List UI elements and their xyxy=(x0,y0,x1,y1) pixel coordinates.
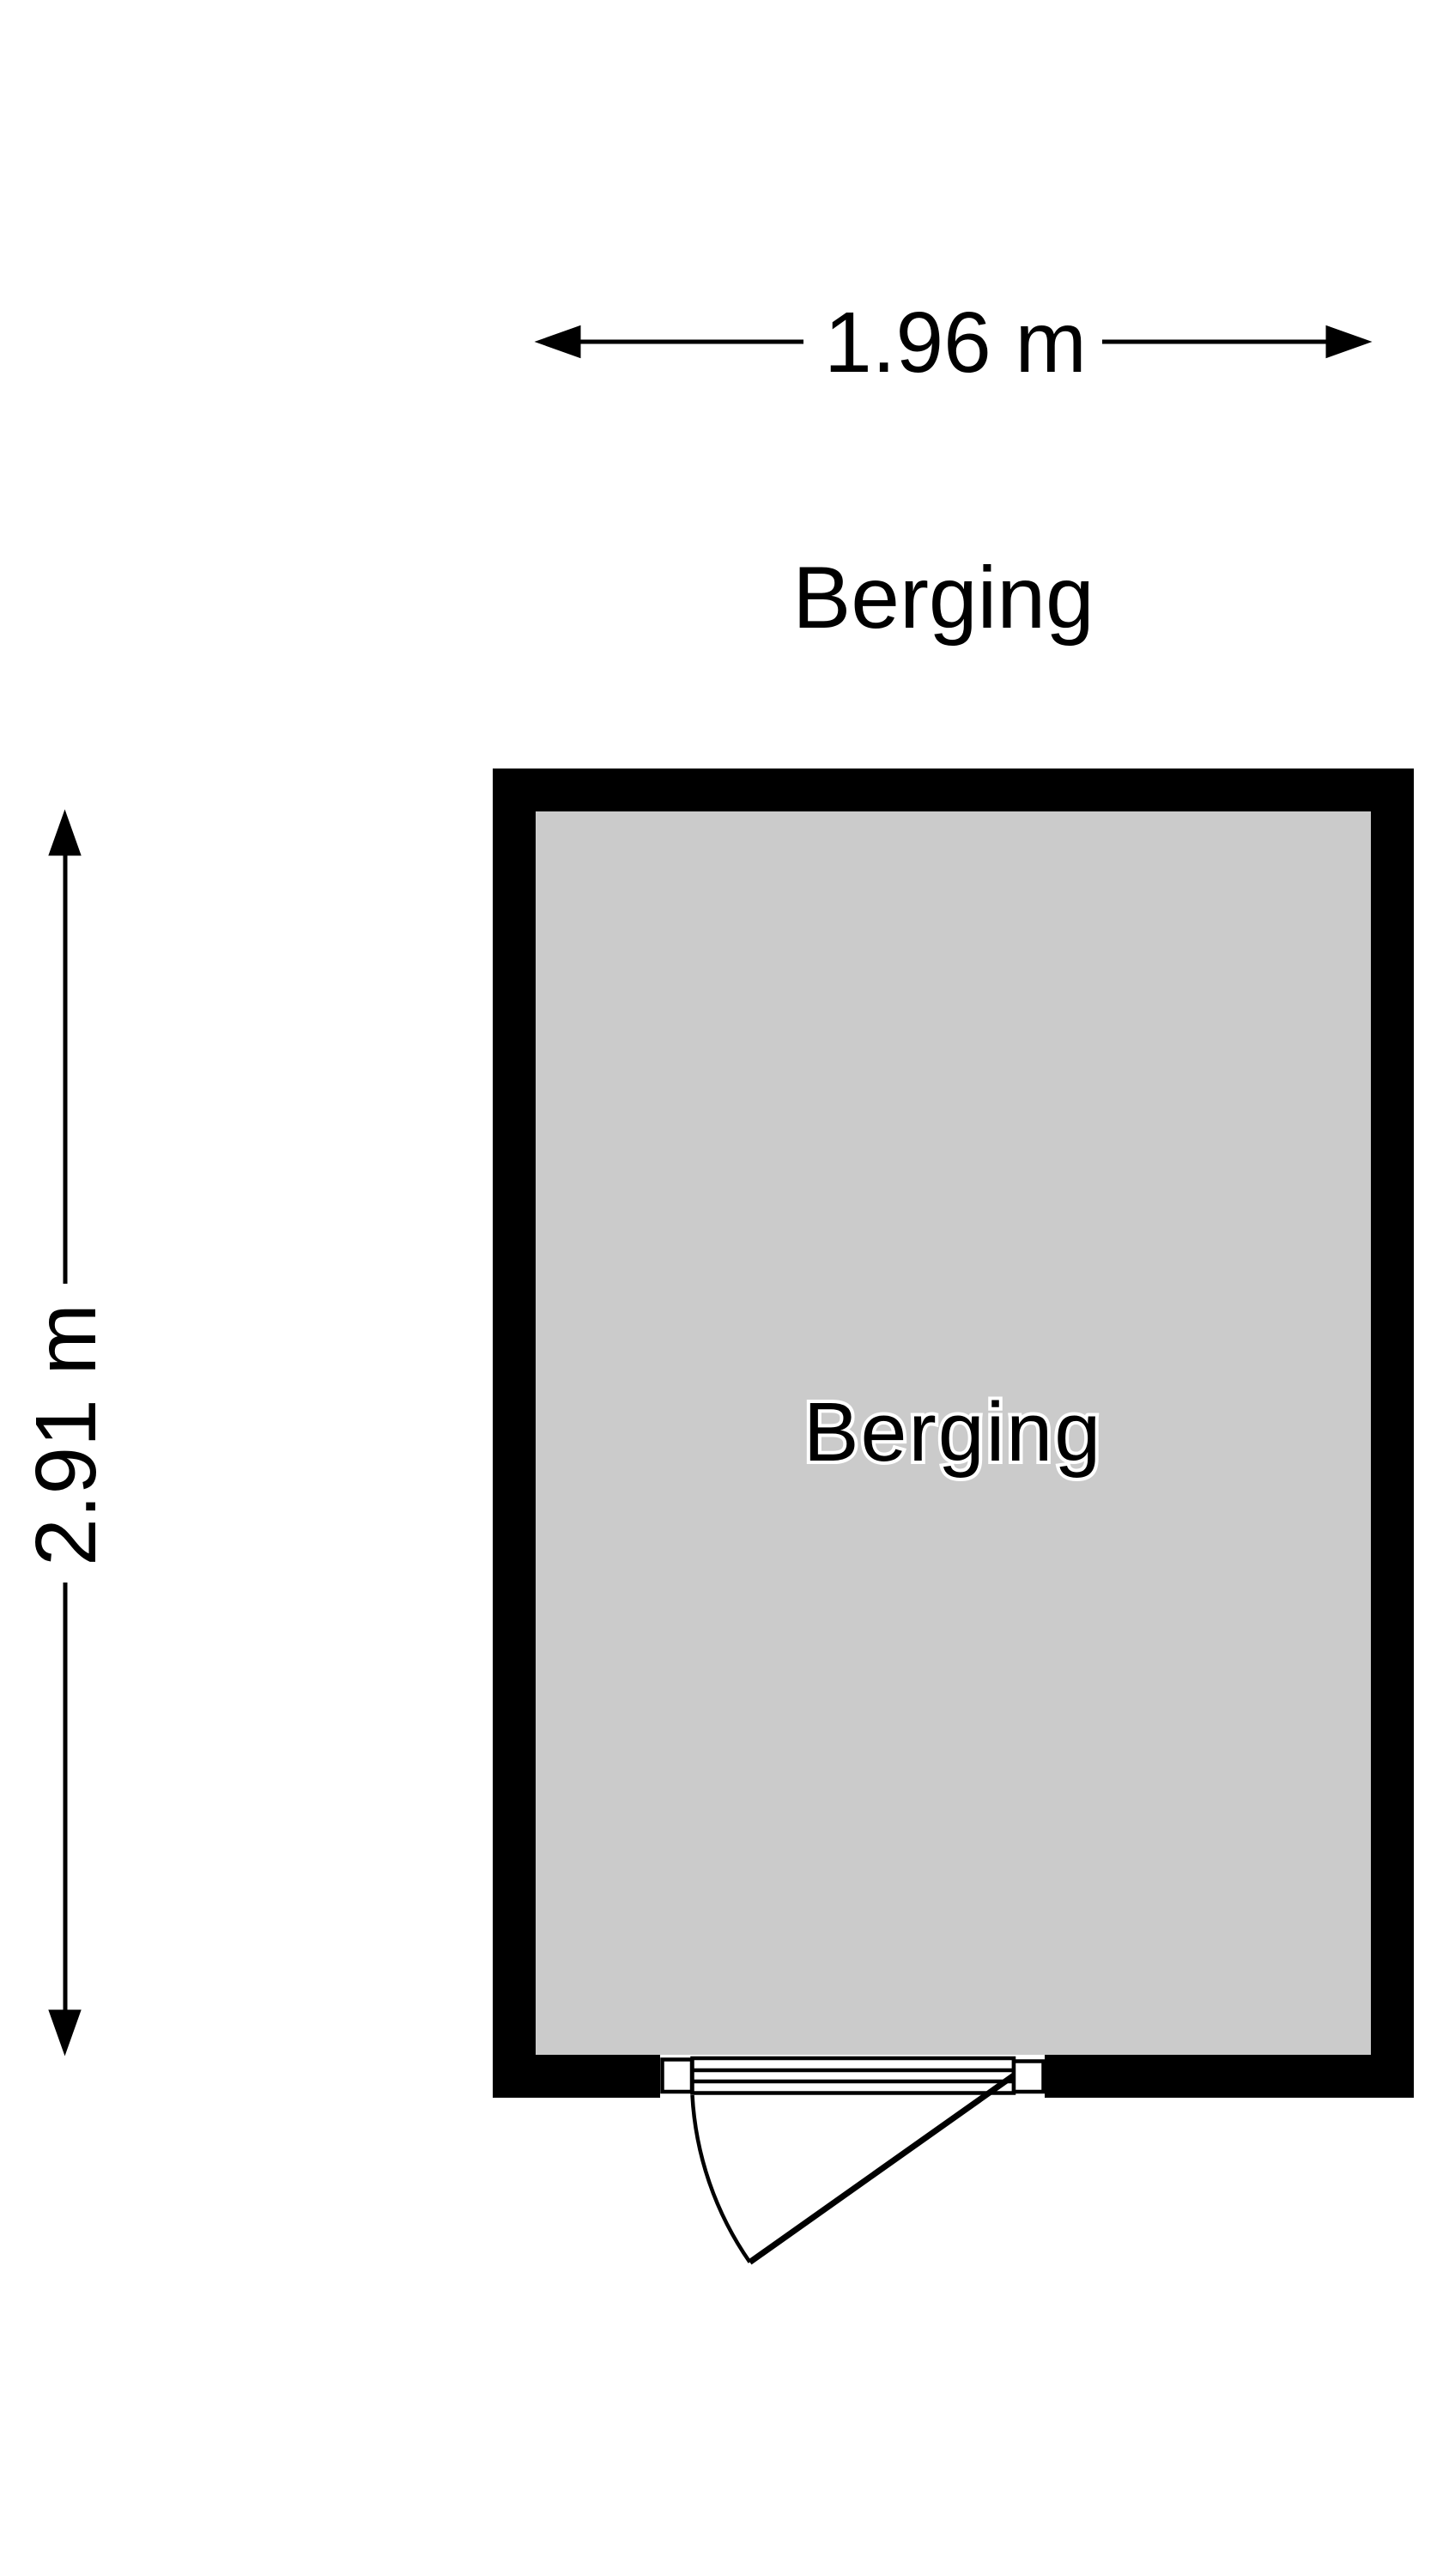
svg-text:Berging: Berging xyxy=(803,1385,1102,1479)
svg-text:2.91 m: 2.91 m xyxy=(18,1303,114,1566)
svg-text:1.96 m: 1.96 m xyxy=(824,295,1087,391)
svg-text:Berging: Berging xyxy=(792,549,1094,647)
